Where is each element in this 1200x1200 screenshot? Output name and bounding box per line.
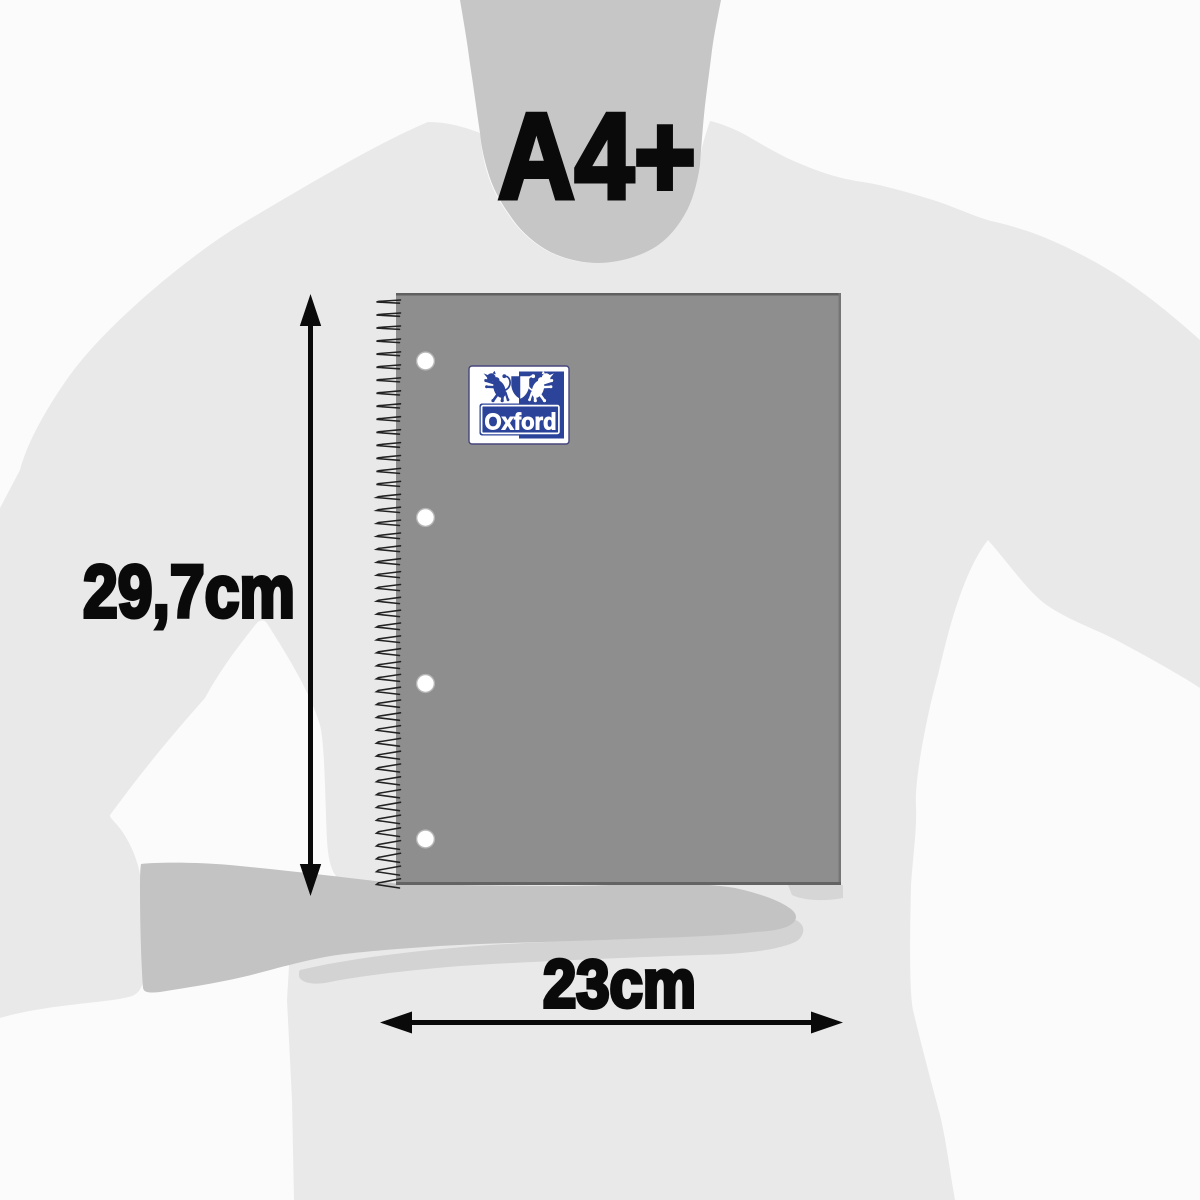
svg-text:29,7cm: 29,7cm xyxy=(83,550,295,633)
svg-text:23cm: 23cm xyxy=(543,946,696,1022)
svg-text:Oxford: Oxford xyxy=(485,409,557,435)
svg-text:A4+: A4+ xyxy=(498,88,696,224)
